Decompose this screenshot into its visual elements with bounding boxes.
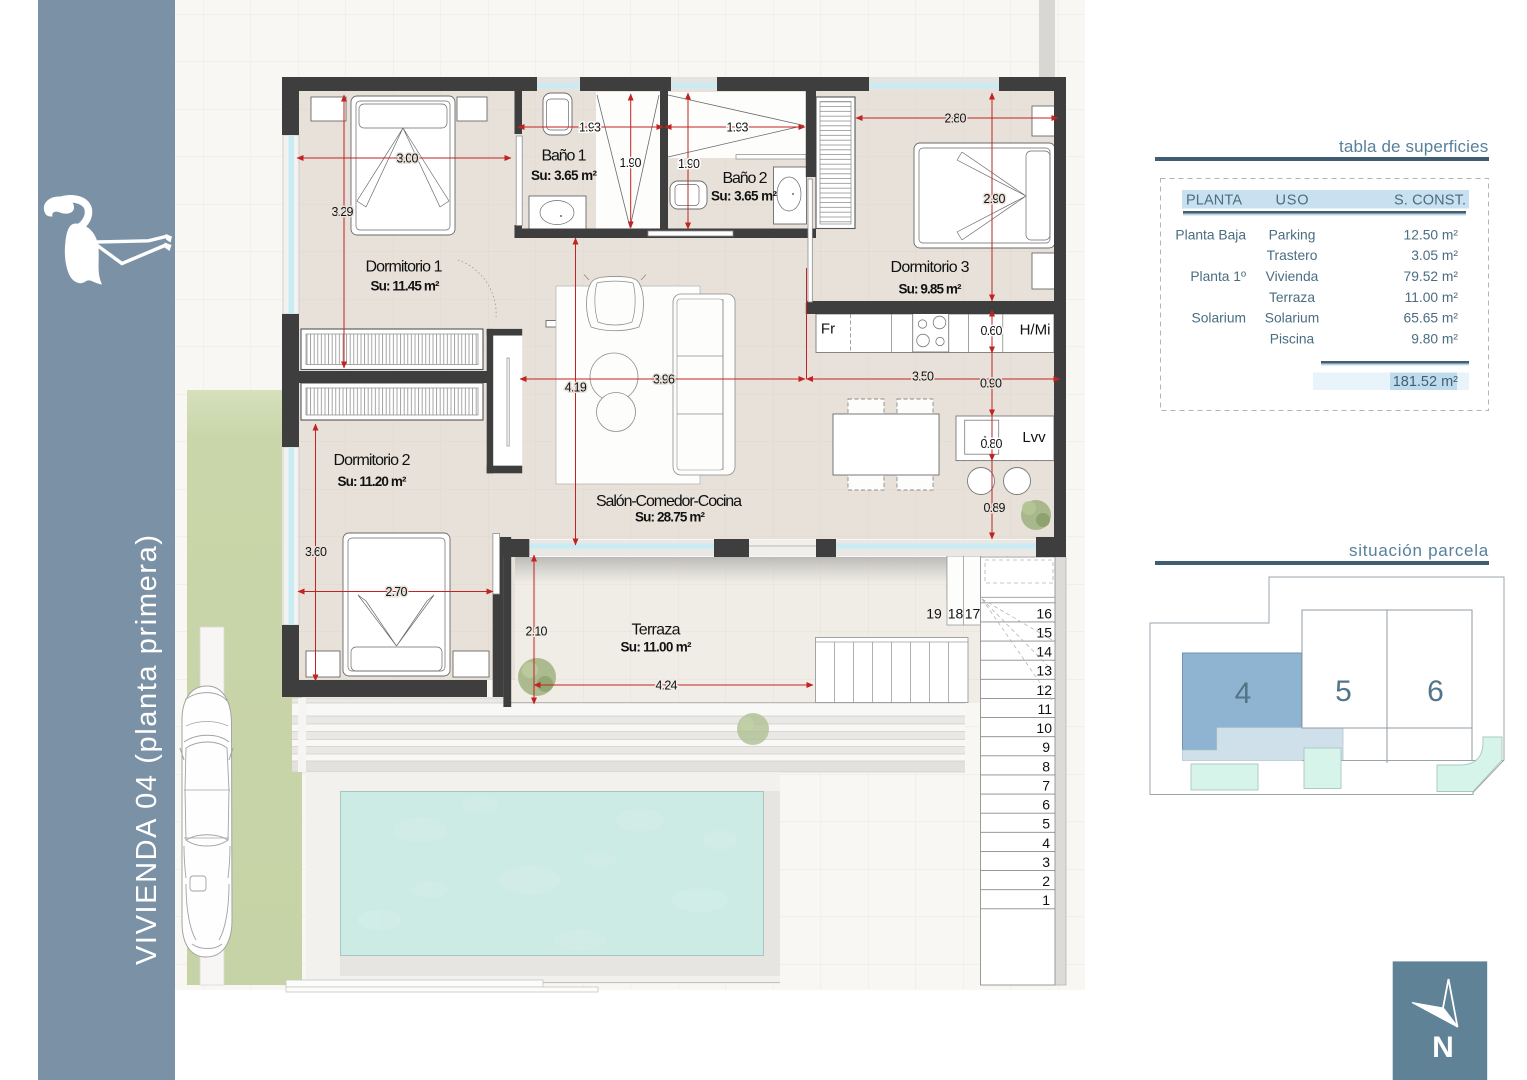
svg-text:0.60: 0.60 [981, 324, 1003, 338]
svg-text:12: 12 [1036, 682, 1052, 698]
svg-text:3: 3 [1042, 854, 1050, 870]
svg-text:17: 17 [965, 605, 981, 621]
svg-text:Baño 1: Baño 1 [542, 148, 587, 165]
svg-text:Dormitorio 2: Dormitorio 2 [334, 452, 411, 469]
svg-text:0.80: 0.80 [981, 437, 1003, 451]
svg-text:3.29: 3.29 [332, 205, 354, 219]
svg-text:5: 5 [1335, 675, 1352, 708]
svg-text:Su: 28.75 m²: Su: 28.75 m² [635, 510, 706, 525]
svg-text:15: 15 [1036, 624, 1052, 640]
svg-text:Su: 11.20 m²: Su: 11.20 m² [338, 474, 408, 489]
svg-text:VIVIENDA 04 (planta primera): VIVIENDA 04 (planta primera) [131, 535, 163, 965]
svg-text:PLANTA: PLANTA [1186, 193, 1242, 209]
svg-text:19: 19 [926, 605, 942, 621]
svg-text:N: N [1432, 1031, 1454, 1064]
svg-text:79.52 m²: 79.52 m² [1404, 269, 1459, 284]
svg-text:Solarium: Solarium [1192, 311, 1246, 326]
svg-text:11.00 m²: 11.00 m² [1405, 290, 1459, 305]
svg-text:H/Mi: H/Mi [1020, 322, 1051, 339]
svg-text:Terraza: Terraza [632, 622, 681, 639]
svg-text:0.90: 0.90 [980, 377, 1002, 391]
svg-text:4.19: 4.19 [565, 381, 587, 395]
svg-text:12.50 m²: 12.50 m² [1404, 228, 1459, 243]
svg-text:1: 1 [1042, 892, 1050, 908]
svg-text:Su: 11.45 m²: Su: 11.45 m² [371, 279, 441, 294]
svg-text:4: 4 [1235, 677, 1252, 710]
svg-text:3.50: 3.50 [912, 370, 934, 384]
svg-text:Parking: Parking [1269, 228, 1316, 243]
svg-text:Su: 9.85 m²: Su: 9.85 m² [899, 282, 963, 297]
svg-text:0.89: 0.89 [984, 501, 1006, 515]
svg-text:3.96: 3.96 [653, 373, 675, 387]
svg-text:Trastero: Trastero [1267, 248, 1318, 263]
svg-text:Terraza: Terraza [1269, 290, 1315, 305]
svg-text:9.80 m²: 9.80 m² [1411, 331, 1458, 346]
svg-text:3.60: 3.60 [305, 545, 327, 559]
svg-text:13: 13 [1036, 663, 1052, 679]
svg-text:9: 9 [1042, 739, 1050, 755]
svg-text:Fr: Fr [821, 321, 835, 338]
svg-text:Dormitorio 1: Dormitorio 1 [366, 259, 443, 276]
svg-text:8: 8 [1042, 758, 1050, 774]
svg-text:Su: 3.65 m²: Su: 3.65 m² [531, 168, 598, 183]
svg-text:181.52 m²: 181.52 m² [1393, 374, 1458, 390]
svg-text:7: 7 [1042, 777, 1050, 793]
svg-text:Baño 2: Baño 2 [723, 170, 768, 187]
svg-text:tabla de superficies: tabla de superficies [1339, 137, 1489, 156]
svg-text:Planta 1º: Planta 1º [1190, 269, 1246, 284]
svg-text:3.05 m²: 3.05 m² [1411, 248, 1458, 263]
svg-text:1.93: 1.93 [579, 121, 601, 135]
svg-text:4: 4 [1042, 835, 1050, 851]
svg-text:16: 16 [1036, 605, 1052, 621]
svg-text:3.00: 3.00 [397, 152, 419, 166]
svg-text:5: 5 [1042, 816, 1050, 832]
svg-text:2.70: 2.70 [386, 585, 408, 599]
svg-text:6: 6 [1427, 675, 1444, 708]
svg-text:11: 11 [1037, 701, 1052, 717]
svg-text:Su: 3.65 m²: Su: 3.65 m² [711, 189, 778, 204]
svg-text:6: 6 [1042, 797, 1050, 813]
svg-text:65.65 m²: 65.65 m² [1404, 311, 1459, 326]
svg-text:1.90: 1.90 [620, 156, 642, 170]
svg-text:1.93: 1.93 [727, 121, 749, 135]
svg-text:18: 18 [948, 605, 964, 621]
svg-text:Piscina: Piscina [1270, 331, 1315, 346]
svg-text:Su: 11.00 m²: Su: 11.00 m² [621, 640, 693, 655]
svg-text:USO: USO [1276, 193, 1309, 209]
svg-text:14: 14 [1036, 644, 1052, 660]
svg-text:2.80: 2.80 [945, 112, 967, 126]
svg-text:Solarium: Solarium [1265, 311, 1319, 326]
svg-text:S. CONST.: S. CONST. [1394, 193, 1466, 209]
svg-text:10: 10 [1036, 720, 1052, 736]
svg-text:2: 2 [1042, 873, 1050, 889]
svg-text:Dormitorio 3: Dormitorio 3 [891, 259, 970, 276]
svg-text:2.10: 2.10 [526, 625, 548, 639]
svg-text:1.90: 1.90 [678, 157, 700, 171]
svg-text:Vivienda: Vivienda [1266, 269, 1319, 284]
svg-text:Salón-Comedor-Cocina: Salón-Comedor-Cocina [596, 493, 742, 510]
svg-text:2.90: 2.90 [984, 192, 1006, 206]
svg-text:situación parcela: situación parcela [1349, 541, 1489, 560]
svg-text:Planta Baja: Planta Baja [1175, 228, 1246, 243]
svg-text:4.24: 4.24 [656, 679, 678, 693]
svg-text:Lvv: Lvv [1022, 429, 1046, 446]
